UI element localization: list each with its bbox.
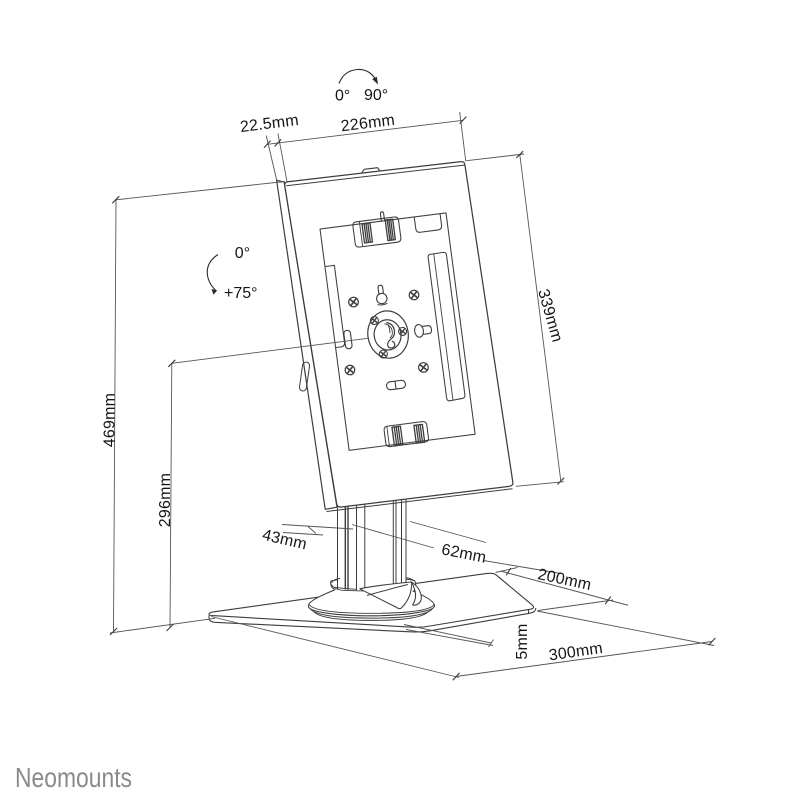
- svg-text:0°: 0°: [235, 245, 250, 262]
- svg-text:Neomounts: Neomounts: [15, 762, 132, 793]
- svg-text:469mm: 469mm: [101, 393, 118, 447]
- svg-text:0°: 0°: [335, 88, 350, 105]
- svg-text:296mm: 296mm: [157, 473, 174, 527]
- svg-text:90°: 90°: [364, 87, 388, 104]
- svg-text:+75°: +75°: [224, 285, 258, 302]
- svg-text:5mm: 5mm: [514, 623, 531, 659]
